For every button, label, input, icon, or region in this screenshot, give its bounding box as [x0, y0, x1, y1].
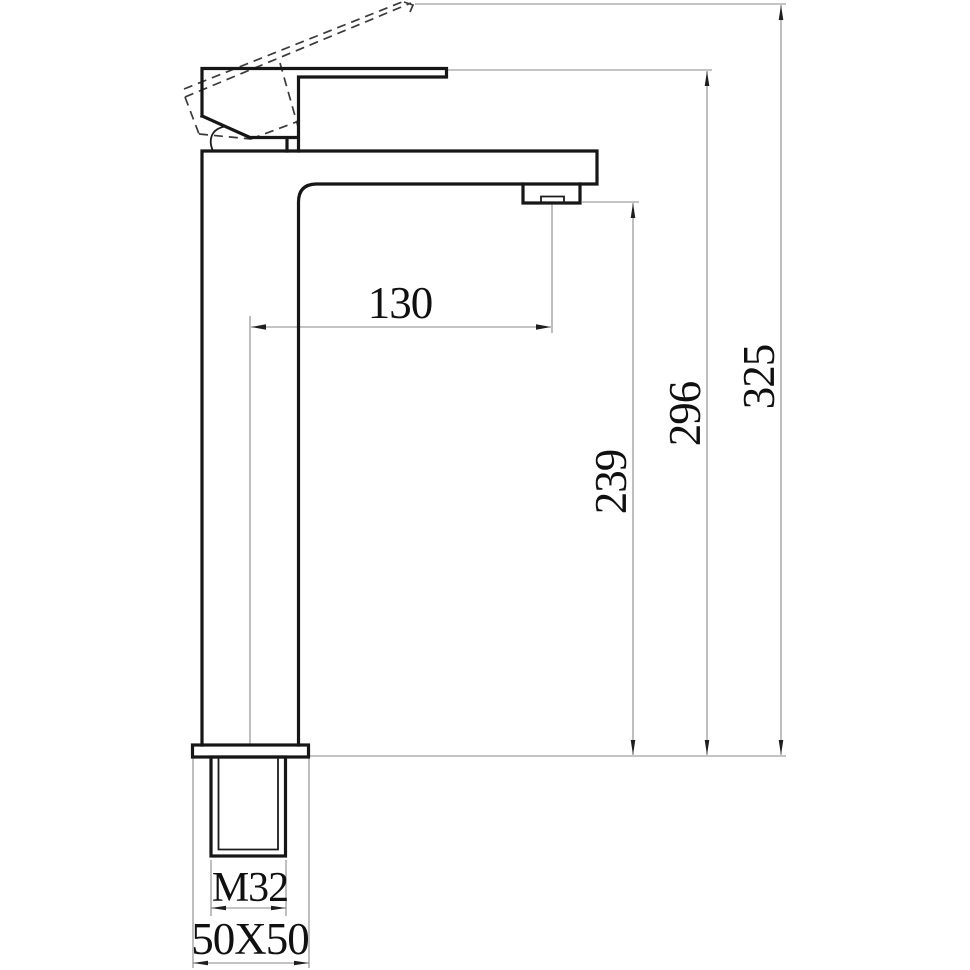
arrow-overall-top: [779, 5, 784, 20]
phantom-body-right-edge: [280, 63, 299, 130]
faucet-outline: [193, 69, 598, 857]
label-reach: 130: [368, 278, 433, 328]
label-thread-size: M32: [212, 865, 288, 911]
label-handle-height: 296: [660, 381, 710, 446]
dimension-lines: [193, 4, 786, 968]
arrow-outlet-top: [631, 203, 636, 218]
arrow-handle-top: [705, 71, 710, 86]
basin-mixer-dimension-drawing: 130 239 296 325 M32 50X50: [0, 0, 970, 970]
handle-lever-and-body: [202, 69, 447, 152]
arrow-reach-left: [251, 324, 266, 330]
faucet-body: [202, 151, 597, 745]
threaded-shank: [211, 757, 286, 856]
aerator-housing: [523, 184, 580, 203]
thread-root-lines: [219, 759, 279, 850]
dimension-labels: 130 239 296 325 M32 50X50: [191, 278, 784, 964]
base-plate: [193, 745, 309, 757]
phantom-lever-tip-cap: [404, 2, 413, 12]
technical-drawing-canvas: 130 239 296 325 M32 50X50: [0, 0, 970, 970]
cartridge-dome-arc: [211, 127, 225, 152]
label-base-size: 50X50: [191, 914, 309, 964]
arrow-handle-bottom: [705, 740, 710, 755]
arrow-overall-bottom: [779, 740, 784, 755]
label-outlet-height: 239: [586, 450, 636, 515]
arrow-outlet-bottom: [631, 740, 636, 755]
label-overall-height: 325: [734, 345, 784, 410]
arrow-reach-right: [536, 324, 551, 330]
dimension-arrowheads: [193, 5, 783, 965]
phantom-body-left-edge: [185, 97, 199, 134]
